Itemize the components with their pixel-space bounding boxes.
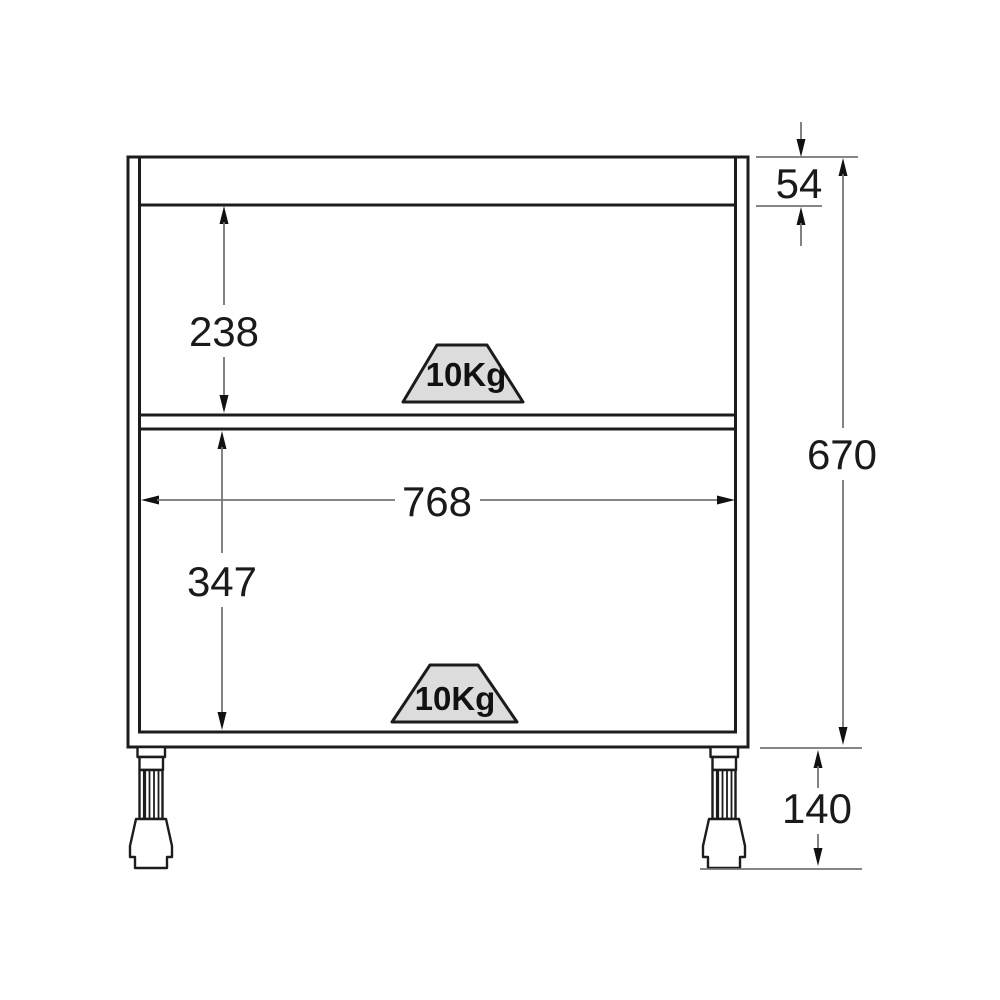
arrowhead-up-icon	[814, 750, 823, 768]
left-leg-foot	[130, 819, 172, 868]
dim-label-54: 54	[776, 160, 823, 207]
dim-label-670: 670	[807, 431, 877, 478]
arrowhead-down-icon	[797, 139, 806, 157]
arrowhead-down-icon	[839, 727, 848, 745]
arrowhead-up-icon	[839, 158, 848, 176]
right-leg	[703, 747, 745, 868]
dim-label-238: 238	[189, 308, 259, 355]
dim-label-140: 140	[782, 785, 852, 832]
arrowhead-down-icon	[814, 848, 823, 866]
left-leg-collar	[138, 747, 166, 757]
arrowhead-up-icon	[797, 207, 806, 225]
technical-drawing-svg: 10Kg 10Kg 238 347 768	[0, 0, 1000, 1000]
left-leg-upper-block	[140, 757, 164, 770]
right-leg-collar	[711, 747, 739, 757]
right-leg-upper-block	[713, 757, 737, 770]
cabinet-carcass	[128, 157, 748, 747]
dim-label-347: 347	[187, 558, 257, 605]
cabinet-dimension-drawing: 10Kg 10Kg 238 347 768	[0, 0, 1000, 1000]
lower-load-label: 10Kg	[415, 680, 496, 717]
right-leg-foot	[703, 819, 745, 868]
left-leg	[130, 747, 172, 868]
dim-label-768: 768	[402, 478, 472, 525]
dimension-cabinet-height: 670	[760, 158, 877, 748]
upper-load-label: 10Kg	[426, 356, 507, 393]
carcass-outer-outline	[128, 157, 748, 747]
